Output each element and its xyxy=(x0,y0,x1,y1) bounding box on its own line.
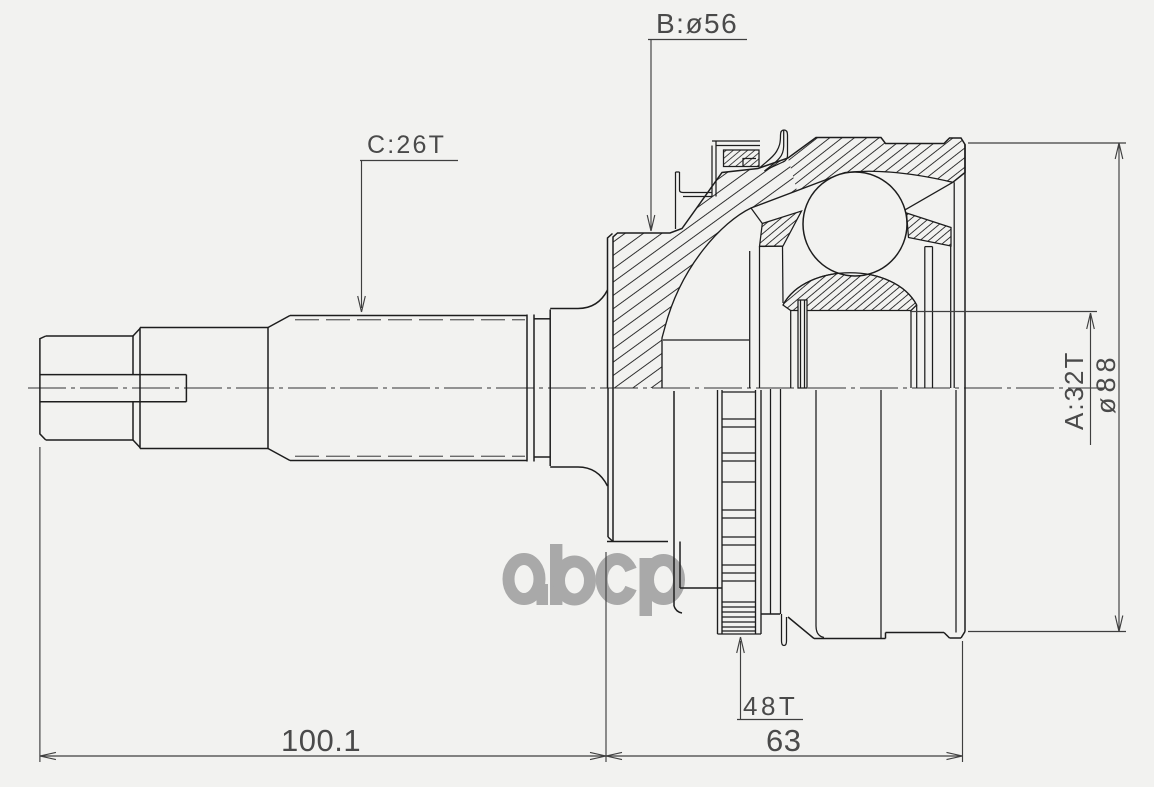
svg-text:ø88: ø88 xyxy=(1091,352,1121,414)
svg-text:48T: 48T xyxy=(743,691,798,721)
svg-text:A:32T: A:32T xyxy=(1059,351,1089,430)
svg-text:63: 63 xyxy=(766,723,801,758)
svg-text:B:ø56: B:ø56 xyxy=(656,8,738,39)
svg-text:C:26T: C:26T xyxy=(367,131,446,159)
svg-text:100.1: 100.1 xyxy=(281,723,361,758)
